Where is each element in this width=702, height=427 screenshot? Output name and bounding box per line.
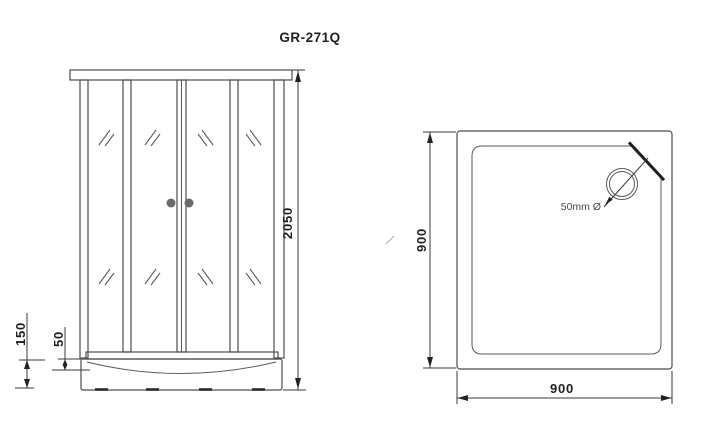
- glass-reflection-mark: [198, 269, 213, 285]
- tray-height-dim-label: 150: [13, 322, 28, 346]
- door-knob-left: [167, 199, 176, 208]
- top-view: 50mm Ø: [457, 131, 672, 369]
- tray-rim-dim-label: 50: [51, 331, 66, 347]
- drain-inner-circle: [610, 172, 635, 197]
- stray-mark: [386, 236, 394, 244]
- glass-reflection-mark: [99, 269, 114, 285]
- arrow-down: [295, 378, 301, 389]
- drain-outer-circle: [607, 169, 638, 200]
- glass-reflection-mark: [145, 269, 160, 285]
- technical-drawing: GR-271Q: [0, 0, 702, 427]
- glass-reflection-mark: [246, 130, 261, 146]
- front-view-dimensions: 2050 150 50: [13, 70, 306, 390]
- arrow-up: [295, 71, 301, 82]
- drain-size-label: 50mm Ø: [561, 201, 601, 213]
- bottom-rail: [86, 352, 278, 359]
- top-frame-bar: [70, 70, 292, 80]
- shower-tray: [81, 359, 282, 390]
- tray-basin-curve: [87, 362, 276, 374]
- width-dim-label: 900: [550, 381, 574, 396]
- arrow-up: [63, 360, 68, 366]
- glass-reflection-mark: [99, 130, 114, 146]
- left-frame-post: [80, 80, 88, 358]
- front-view: [70, 70, 292, 390]
- arrow-up: [427, 133, 433, 144]
- arrow-right: [661, 395, 672, 401]
- corner-chamfer: [630, 144, 663, 180]
- glass-reflection-mark: [145, 130, 160, 146]
- height-dim-label: 2050: [280, 207, 295, 239]
- arrow-up: [24, 360, 30, 369]
- arrow-down: [427, 357, 433, 368]
- arrow-down: [63, 365, 68, 371]
- divider-post-1: [123, 80, 131, 352]
- divider-post-2: [230, 80, 238, 352]
- arrow-left: [458, 395, 469, 401]
- glass-reflection-mark: [246, 269, 261, 285]
- glass-reflection-mark: [198, 130, 213, 146]
- drawing-sheet: GR-271Q: [0, 0, 702, 427]
- depth-dim-label: 900: [414, 228, 429, 252]
- model-title: GR-271Q: [279, 30, 340, 45]
- arrow-down: [24, 379, 30, 388]
- door-knob-right: [185, 199, 194, 208]
